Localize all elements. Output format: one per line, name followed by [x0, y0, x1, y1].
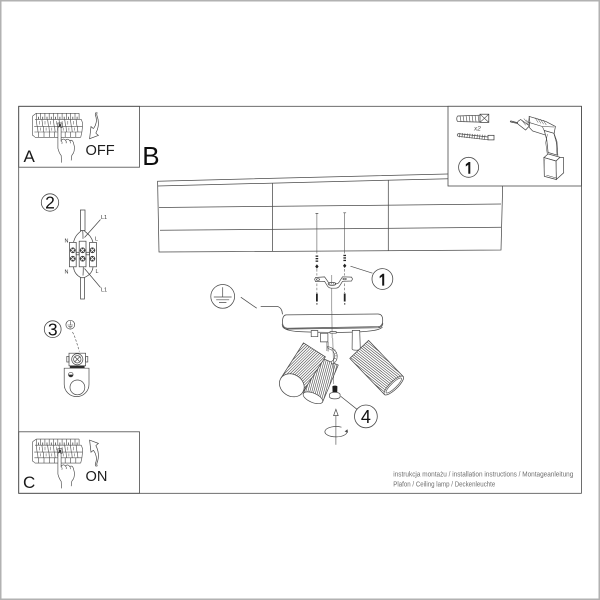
svg-text:Plafon / Ceiling lamp / Decken: Plafon / Ceiling lamp / Deckenleuchte — [393, 481, 495, 488]
svg-text:ON: ON — [86, 469, 108, 485]
svg-text:3: 3 — [48, 319, 58, 339]
svg-text:L: L — [95, 237, 98, 243]
svg-text:L1: L1 — [101, 215, 107, 221]
svg-text:A: A — [24, 147, 36, 166]
svg-text:C: C — [23, 473, 35, 492]
svg-text:L1: L1 — [101, 288, 107, 294]
svg-text:x2: x2 — [473, 126, 481, 133]
svg-text:B: B — [142, 141, 159, 171]
svg-text:4: 4 — [361, 407, 371, 427]
svg-text:L: L — [96, 269, 99, 275]
svg-text:OFF: OFF — [86, 143, 115, 159]
svg-text:N: N — [65, 270, 69, 276]
svg-text:instrukcja montażu / installat: instrukcja montażu / installation instru… — [393, 471, 573, 478]
svg-text:N: N — [65, 239, 69, 245]
svg-text:2: 2 — [45, 193, 55, 213]
